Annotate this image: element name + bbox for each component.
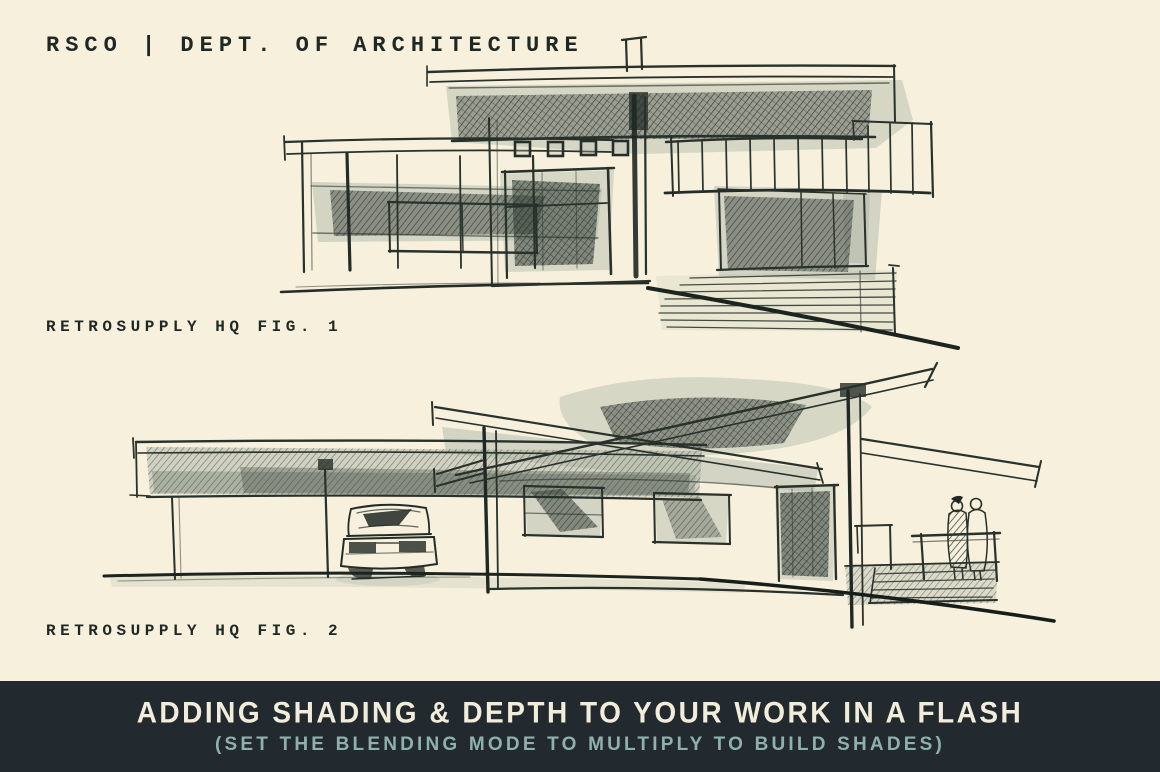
- fig2-caption: RETROSUPPLY HQ FIG. 2: [46, 622, 342, 640]
- house-sketch-fig2-illustration: [0, 355, 1160, 655]
- house-sketch-fig1-illustration: [0, 0, 1160, 360]
- car-sketch: [341, 505, 437, 580]
- banner-headline: ADDING SHADING & DEPTH TO YOUR WORK IN A…: [137, 696, 1024, 730]
- poster-page: RSCO | DEPT. OF ARCHITECTURE: [0, 0, 1160, 772]
- fig1-caption: RETROSUPPLY HQ FIG. 1: [46, 318, 342, 336]
- banner-subline: (SET THE BLENDING MODE TO MULTIPLY TO BU…: [215, 734, 945, 756]
- footer-banner: ADDING SHADING & DEPTH TO YOUR WORK IN A…: [0, 681, 1160, 772]
